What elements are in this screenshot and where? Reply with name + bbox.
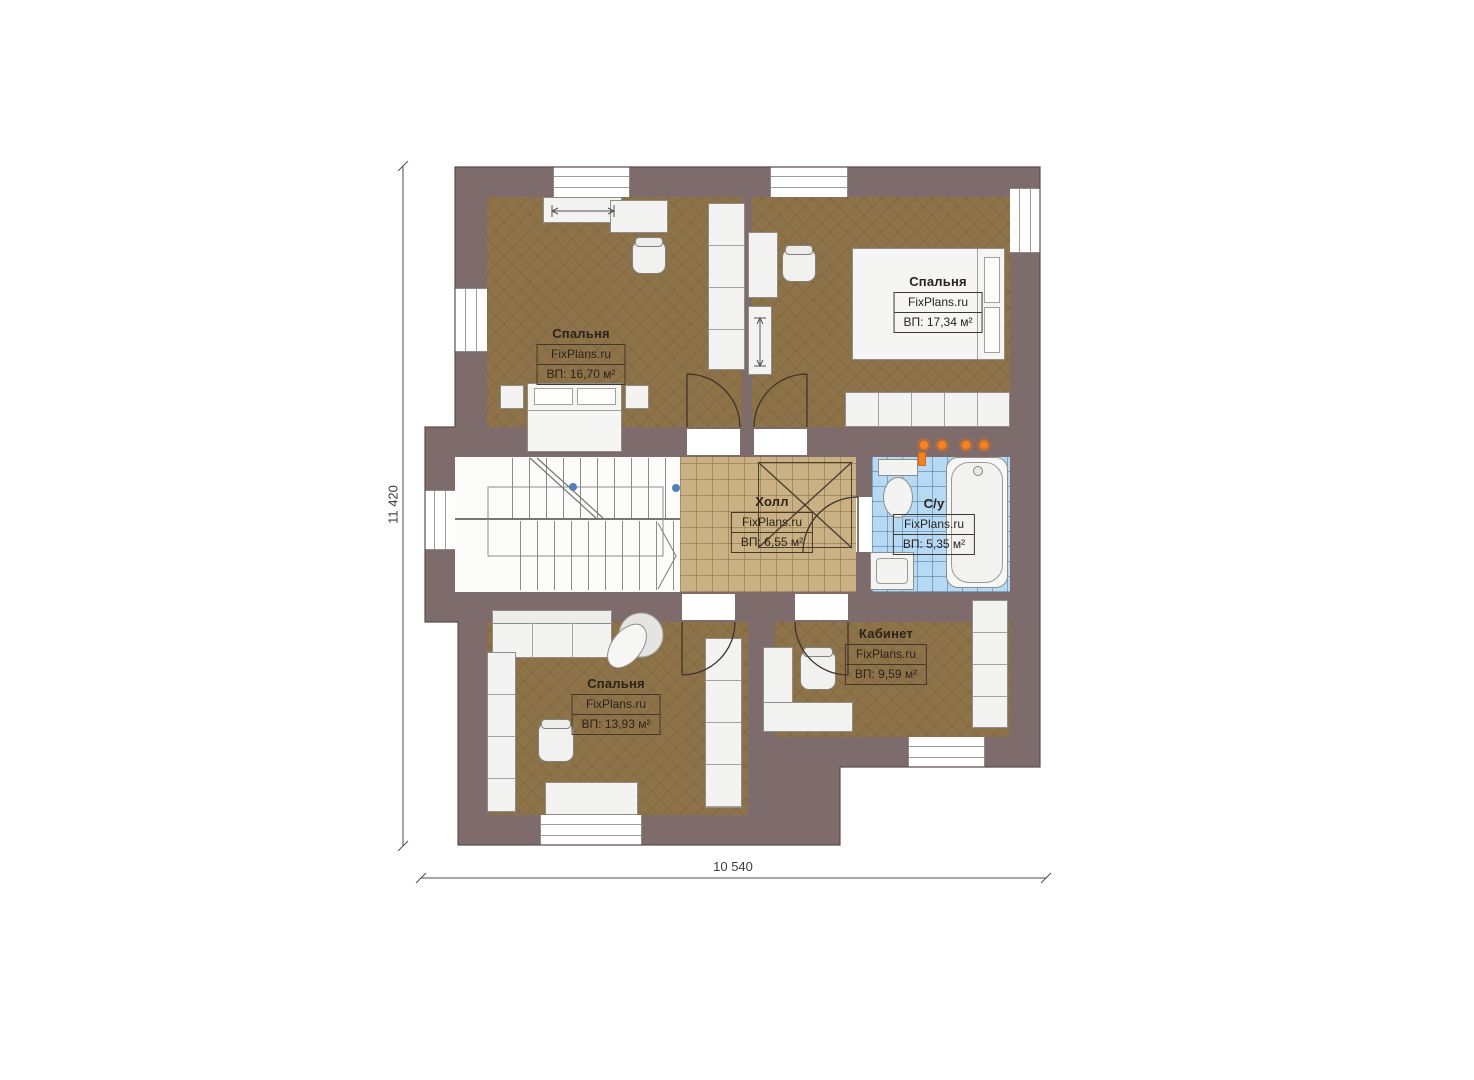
room-label-bathroom: С/у FixPlans.ru ВП: 5,35 м² [893,496,975,555]
window-office [908,737,985,767]
window-top-1 [553,167,630,197]
dimension-height-label: 11 420 [386,475,401,535]
window-stair-ext [425,490,455,550]
bed-symbol [527,383,622,452]
nightstand-symbol [625,385,649,409]
wardrobe-symbol [708,203,745,370]
brand-watermark: FixPlans.ru [732,513,812,533]
window-bedroom-bl [540,815,642,845]
window-right-top [1010,188,1040,253]
room-title: Спальня [572,676,661,691]
sink-icon [876,558,908,584]
room-area: ВП: 13,93 м² [573,715,660,734]
window-top-2 [770,167,848,197]
desk-symbol [610,200,668,233]
room-info-box: FixPlans.ru ВП: 5,35 м² [893,514,975,555]
room-title: Спальня [537,326,626,341]
sofa-symbol [492,610,612,658]
wardrobe-symbol [972,600,1008,728]
desk-symbol [763,702,853,732]
heating-dot-icon [919,440,929,450]
closet-row-symbol [845,392,1010,427]
room-area: ВП: 9,59 м² [846,665,926,684]
heating-dot-icon [979,440,989,450]
wall-left-bottom [458,622,487,845]
room-info-box: FixPlans.ru ВП: 6,55 м² [731,512,813,553]
office-chair-symbol [538,722,574,762]
room-title: С/у [893,496,975,511]
rug-symbol [545,782,638,815]
faucet-icon [973,466,983,476]
wall-top [455,167,1040,197]
brand-watermark: FixPlans.ru [894,515,974,535]
heating-dot-icon [961,440,971,450]
office-chair-symbol [800,650,836,690]
room-label-hall: Холл FixPlans.ru ВП: 6,55 м² [731,494,813,553]
room-label-office: Кабинет FixPlans.ru ВП: 9,59 м² [845,626,927,685]
brand-watermark: FixPlans.ru [895,293,982,313]
room-info-box: FixPlans.ru ВП: 16,70 м² [537,344,626,385]
room-title: Спальня [894,274,983,289]
chair-symbol [782,248,816,282]
room-area: ВП: 5,35 м² [894,535,974,554]
door-opening-bedroom-bl [682,594,735,620]
room-area: ВП: 16,70 м² [538,365,625,384]
floor-plan-canvas: 11 420 10 540 Спальня FixPlans.ru ВП: 16… [0,0,1474,1080]
door-opening-bedroom-tr [754,429,807,455]
brand-watermark: FixPlans.ru [573,695,660,715]
room-area: ВП: 17,34 м² [895,313,982,332]
wall-right [1010,197,1040,767]
wall-office-bottom [748,737,1040,767]
room-info-box: FixPlans.ru ВП: 13,93 м² [572,694,661,735]
room-label-bedroom-top-right: Спальня FixPlans.ru ВП: 17,34 м² [894,274,983,333]
door-opening-bathroom [856,497,872,552]
window-left-top [455,288,487,352]
room-title: Холл [731,494,813,509]
door-opening-office [795,594,848,620]
wardrobe-symbol [705,638,742,808]
closet-symbol [487,652,516,812]
dresser-symbol [748,306,772,375]
room-label-bedroom-bottom-left: Спальня FixPlans.ru ВП: 13,93 м² [572,676,661,735]
wall-bottom [458,815,840,845]
heating-bar-icon [918,452,926,466]
stairs-lower-flight [520,521,678,590]
brand-watermark: FixPlans.ru [538,345,625,365]
chair-symbol [632,240,666,274]
brand-watermark: FixPlans.ru [846,645,926,665]
room-area: ВП: 6,55 м² [732,533,812,552]
dimension-width-label: 10 540 [713,859,753,874]
nightstand-symbol [500,385,524,409]
room-info-box: FixPlans.ru ВП: 17,34 м² [894,292,983,333]
toilet-icon [878,459,918,476]
room-info-box: FixPlans.ru ВП: 9,59 м² [845,644,927,685]
room-label-bedroom-top-left: Спальня FixPlans.ru ВП: 16,70 м² [537,326,626,385]
desk-symbol [748,232,778,298]
stairs-mid-rail [455,518,680,520]
room-title: Кабинет [845,626,927,641]
door-opening-bedroom-tl [687,429,740,455]
stairs-upper-flight [512,458,678,518]
heating-dot-icon [937,440,947,450]
